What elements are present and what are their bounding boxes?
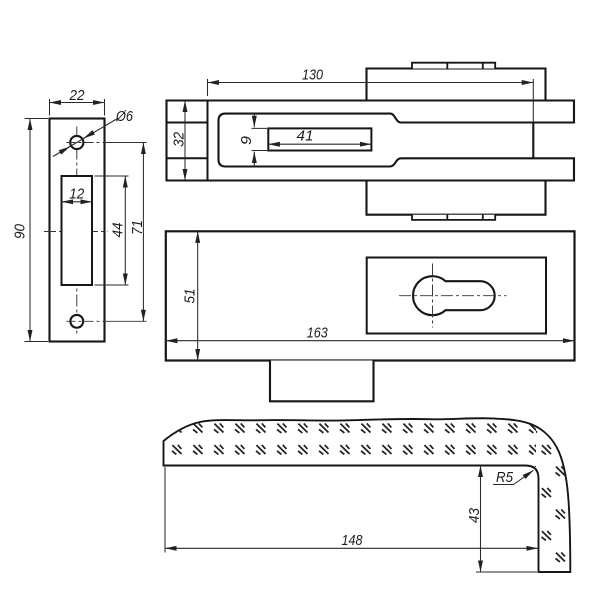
svg-text:32: 32 (171, 131, 188, 147)
svg-text:130: 130 (302, 67, 324, 84)
svg-text:44: 44 (109, 223, 126, 238)
svg-text:43: 43 (466, 507, 483, 523)
svg-text:51: 51 (182, 289, 199, 304)
svg-text:Ø6: Ø6 (115, 108, 133, 125)
svg-text:22: 22 (69, 87, 85, 104)
svg-text:12: 12 (69, 186, 85, 203)
svg-text:41: 41 (297, 128, 314, 145)
svg-text:163: 163 (307, 324, 329, 341)
svg-text:R5: R5 (496, 469, 514, 486)
svg-text:90: 90 (12, 223, 29, 239)
svg-text:9: 9 (238, 135, 255, 145)
svg-text:148: 148 (342, 532, 364, 549)
svg-text:71: 71 (129, 220, 146, 235)
